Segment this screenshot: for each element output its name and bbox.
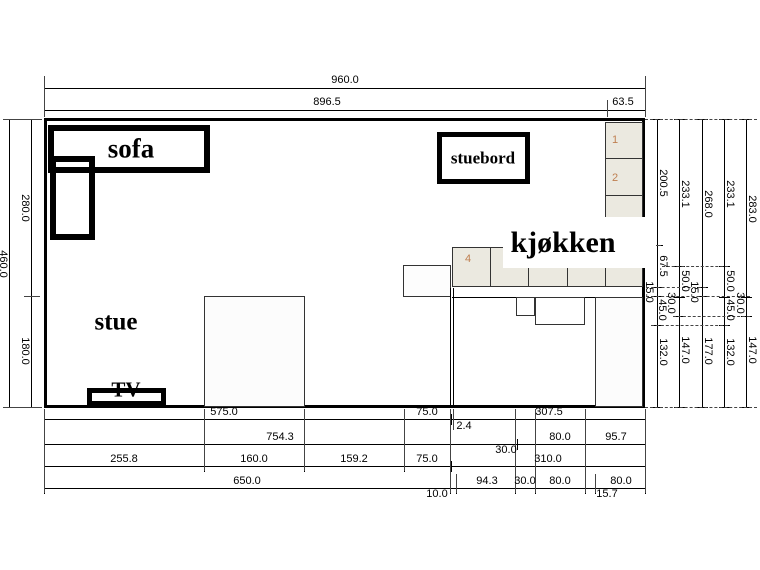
dimension-label[interactable]: 280.0 xyxy=(19,194,31,222)
tv-outline[interactable] xyxy=(87,388,166,406)
dimension-label[interactable]: 63.5 xyxy=(612,96,633,108)
dimension-label[interactable]: 75.0 xyxy=(416,406,437,418)
dimension-label[interactable]: 575.0 xyxy=(210,406,238,418)
dimension-label[interactable]: 15.0 xyxy=(643,281,655,302)
extension-line xyxy=(456,474,457,493)
dimension-label[interactable]: 15.7 xyxy=(596,488,617,500)
dimension-line xyxy=(44,88,645,89)
extension-line xyxy=(607,100,608,117)
extension-line xyxy=(645,409,646,493)
partition-wall-line xyxy=(450,288,451,407)
extension-line xyxy=(44,76,45,117)
cabinet-number-4[interactable]: 4 xyxy=(465,253,471,265)
dimension-label[interactable]: 147.0 xyxy=(746,336,758,364)
extension-line xyxy=(3,407,42,408)
extension-line xyxy=(645,76,646,117)
dimension-tick xyxy=(719,297,730,298)
counter-divider xyxy=(528,268,529,287)
dimension-label[interactable]: 177.0 xyxy=(702,337,714,365)
dimension-label[interactable]: 650.0 xyxy=(233,475,261,487)
dimension-label[interactable]: 95.7 xyxy=(605,431,626,443)
dimension-line xyxy=(44,419,645,420)
dimension-label[interactable]: 2.4 xyxy=(456,420,471,432)
dimension-line xyxy=(31,119,32,407)
dimension-label[interactable]: 30.0 xyxy=(514,475,535,487)
cabinet-divider xyxy=(605,195,643,196)
extension-line xyxy=(3,119,42,120)
counter-divider xyxy=(605,268,606,287)
extension-line xyxy=(651,325,728,326)
dimension-label[interactable]: 132.0 xyxy=(724,338,736,366)
counter-peninsula[interactable] xyxy=(403,265,451,297)
dimension-label[interactable]: 10.0 xyxy=(426,488,447,500)
dimension-label[interactable]: 80.0 xyxy=(610,475,631,487)
extension-line xyxy=(450,409,451,493)
stuebord-label[interactable]: stuebord xyxy=(451,150,515,167)
extension-line xyxy=(585,409,586,493)
dimension-label[interactable]: 307.5 xyxy=(535,406,563,418)
dimension-line xyxy=(679,119,680,407)
dimension-label[interactable]: 67.5 xyxy=(657,255,669,276)
extension-line xyxy=(44,409,45,493)
extension-line xyxy=(24,296,40,297)
counter-divider xyxy=(567,268,568,287)
partition-wall-line xyxy=(453,288,454,407)
dimension-line xyxy=(44,488,645,489)
dimension-label[interactable]: 160.0 xyxy=(240,453,268,465)
dimension-label[interactable]: 180.0 xyxy=(19,337,31,365)
extension-line xyxy=(662,266,728,267)
extension-line xyxy=(453,409,454,430)
dimension-label[interactable]: 233.1 xyxy=(724,180,736,208)
extension-line xyxy=(304,409,305,471)
fridge-outline[interactable] xyxy=(595,297,643,407)
dimension-line xyxy=(746,119,747,407)
dimension-label[interactable]: 15.0 xyxy=(688,281,700,302)
dimension-label[interactable]: 896.5 xyxy=(313,96,341,108)
stue-label[interactable]: stue xyxy=(94,310,137,335)
dimension-label[interactable]: 960.0 xyxy=(331,74,359,86)
dimension-label[interactable]: 50.0 xyxy=(724,270,736,291)
dimension-label[interactable]: 75.0 xyxy=(416,453,437,465)
dimension-label[interactable]: 200.5 xyxy=(657,169,669,197)
cabinet-number-2[interactable]: 2 xyxy=(612,172,618,184)
floorplan-canvas[interactable]: sofa stue TV stuebord 1 2 4 kjøkken 960.… xyxy=(0,0,760,570)
sink-small-outline[interactable] xyxy=(516,297,535,316)
extension-line xyxy=(404,409,405,471)
dimension-label[interactable]: 255.8 xyxy=(110,453,138,465)
dimension-tick xyxy=(451,414,452,425)
counter-divider xyxy=(490,247,491,287)
table-outline[interactable] xyxy=(204,296,305,407)
dimension-label[interactable]: 132.0 xyxy=(657,338,669,366)
dimension-label[interactable]: 80.0 xyxy=(549,431,570,443)
dimension-label[interactable]: 283.0 xyxy=(746,195,758,223)
dimension-label[interactable]: 460.0 xyxy=(0,250,9,278)
sofa-label[interactable]: sofa xyxy=(108,136,155,163)
dimension-label[interactable]: 233.1 xyxy=(679,180,691,208)
kjokken-label[interactable]: kjøkken xyxy=(510,228,615,258)
dimension-tick xyxy=(451,461,452,472)
dimension-line xyxy=(44,466,645,467)
extension-line xyxy=(204,409,205,471)
dimension-label[interactable]: 94.3 xyxy=(476,475,497,487)
dimension-label[interactable]: 159.2 xyxy=(340,453,368,465)
dimension-line xyxy=(44,444,645,445)
dimension-label[interactable]: 754.3 xyxy=(266,431,294,443)
cabinet-number-1[interactable]: 1 xyxy=(612,134,618,146)
dimension-label[interactable]: 80.0 xyxy=(549,475,570,487)
cabinet-divider xyxy=(605,158,643,159)
sink-large-outline[interactable] xyxy=(535,297,585,325)
extension-line xyxy=(645,407,757,408)
dimension-line xyxy=(9,119,10,407)
dimension-line xyxy=(44,110,645,111)
sofa-chaise-outline[interactable] xyxy=(50,156,95,240)
dimension-label[interactable]: 268.0 xyxy=(702,190,714,218)
extension-line xyxy=(645,119,757,120)
dimension-label[interactable]: 30.0 xyxy=(665,292,677,313)
dimension-label[interactable]: 147.0 xyxy=(679,336,691,364)
extension-line xyxy=(673,316,750,317)
dimension-tick xyxy=(517,439,518,450)
dimension-label[interactable]: 30.0 xyxy=(734,292,746,313)
dimension-label[interactable]: 30.0 xyxy=(495,444,516,456)
dimension-label[interactable]: 310.0 xyxy=(534,453,562,465)
